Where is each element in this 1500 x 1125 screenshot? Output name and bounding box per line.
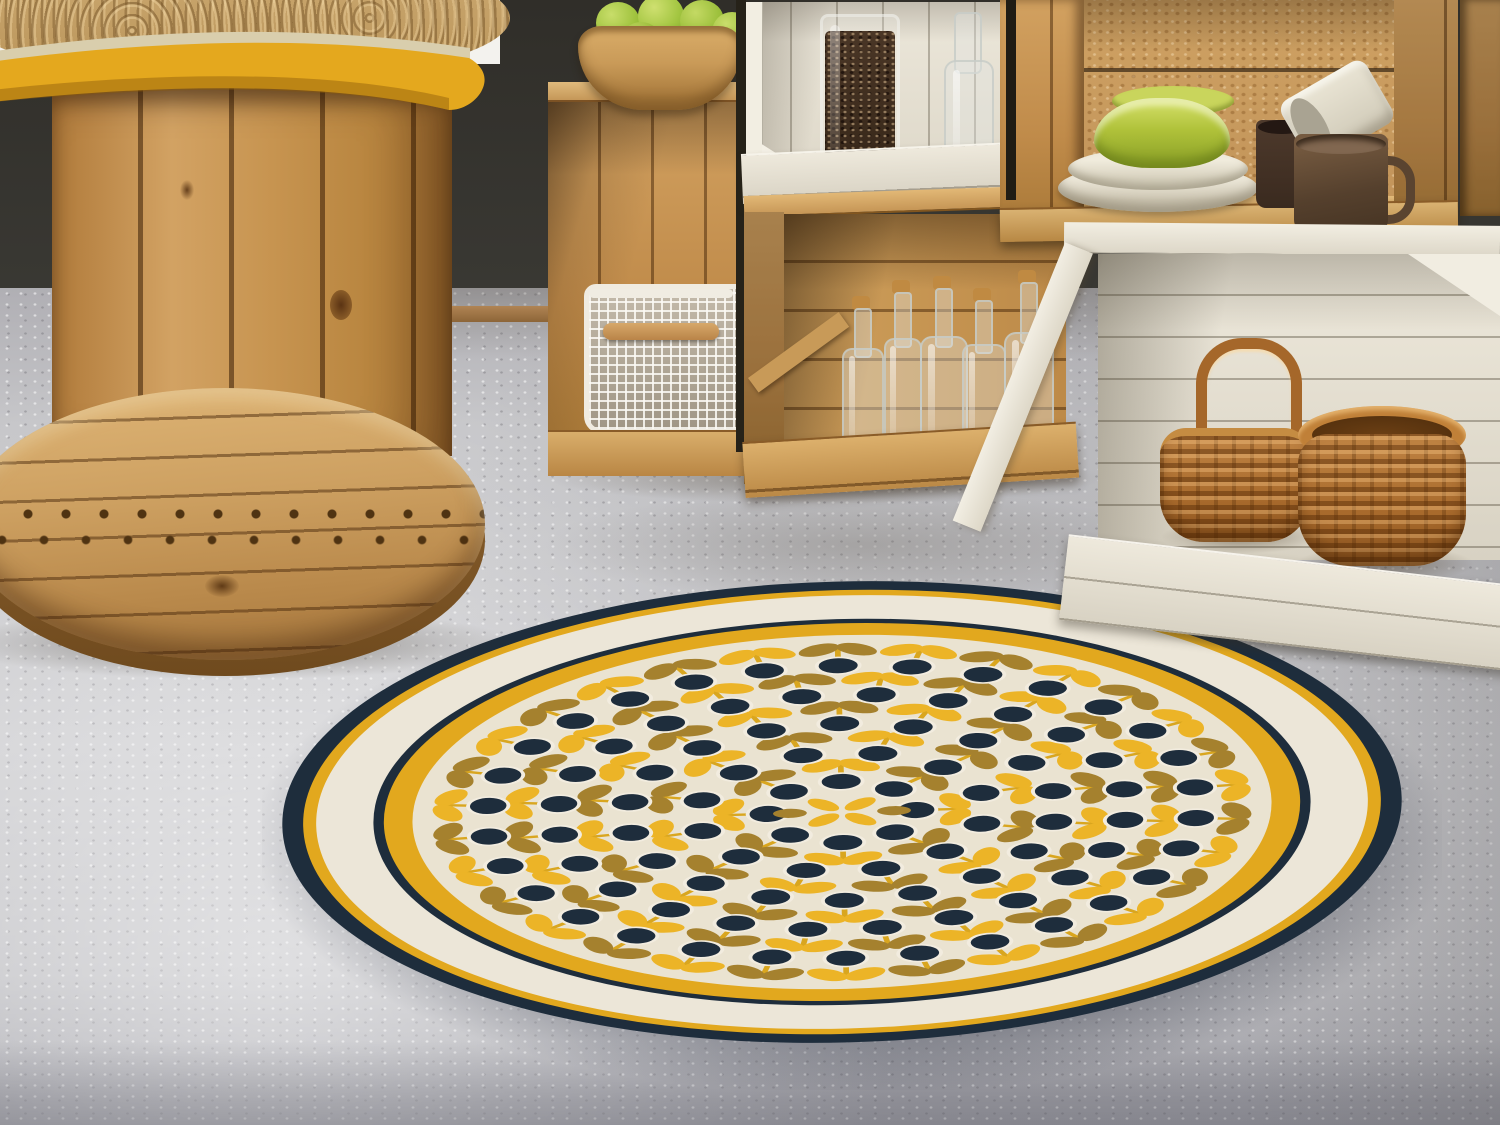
crate-left-bottom-rail <box>548 430 746 476</box>
crate-gap-shadow <box>1006 0 1016 200</box>
spool-base-knot <box>205 575 239 597</box>
round-wicker-basket <box>1298 434 1466 566</box>
brown-mug-rim <box>1296 134 1386 154</box>
brown-mug <box>1294 134 1388 232</box>
wicker-basket-with-handle <box>1160 428 1310 542</box>
pedestal-knot <box>330 290 352 320</box>
basket-crate-top-board <box>1064 222 1500 257</box>
green-bowl <box>1094 98 1230 168</box>
white-mesh-basket <box>584 284 748 434</box>
mesh-basket-wood-handle <box>603 323 719 340</box>
tabletop-edge <box>0 0 495 150</box>
far-right-crate-side <box>1460 0 1500 216</box>
pedestal-knot <box>180 180 194 200</box>
mesh-basket-rim <box>589 289 733 298</box>
kitchen-scene-photo <box>0 0 1500 1125</box>
